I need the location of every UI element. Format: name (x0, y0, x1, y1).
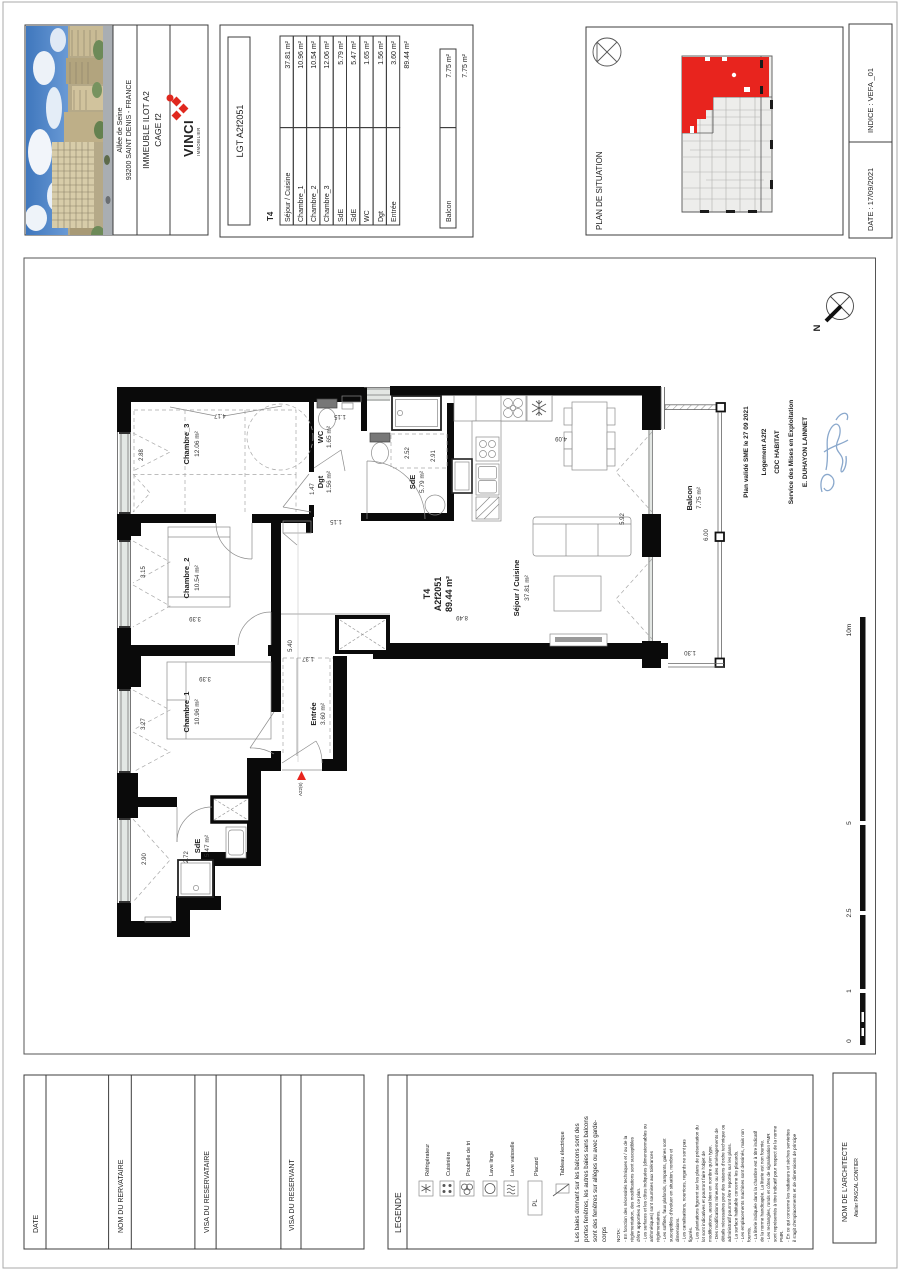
svg-text:de la norme handicapée. La lit: de la norme handicapée. La literie est n… (760, 1140, 765, 1242)
svg-text:12.06 m²: 12.06 m² (194, 430, 201, 456)
svg-text:CDC HABITAT: CDC HABITAT (774, 430, 781, 473)
svg-text:Placard: Placard (534, 1157, 540, 1176)
svg-text:SdE: SdE (351, 208, 358, 222)
svg-text:DATE: DATE (33, 1215, 40, 1233)
svg-text:10.54 m²: 10.54 m² (311, 40, 318, 68)
svg-text:Dgt: Dgt (316, 475, 325, 488)
svg-text:Tableau électrique: Tableau électrique (560, 1131, 566, 1176)
svg-text:6.00: 6.00 (704, 529, 710, 541)
svg-text:- La surface habitable concern: - La surface habitable concerne les plac… (734, 1151, 739, 1242)
svg-text:Dgt: Dgt (378, 211, 385, 222)
svg-text:A2f2051: A2f2051 (433, 577, 443, 612)
svg-text:Cuisinière: Cuisinière (446, 1152, 452, 1176)
svg-text:SdE: SdE (408, 475, 417, 490)
svg-text:10.96 m²: 10.96 m² (194, 698, 201, 724)
svg-text:E. DUHAYON LAINNET: E. DUHAYON LAINNET (802, 417, 809, 487)
svg-text:3.27: 3.27 (141, 718, 147, 730)
svg-text:détails nécessaires pour des r: détails nécessaires pour des raisons d'o… (721, 1124, 726, 1242)
svg-text:CAGE f2: CAGE f2 (153, 113, 163, 147)
svg-text:37.81 m²: 37.81 m² (524, 574, 531, 600)
svg-text:2.52: 2.52 (405, 447, 411, 459)
svg-text:PMR.: PMR. (779, 1231, 784, 1242)
svg-text:4.09: 4.09 (555, 435, 567, 441)
svg-text:corps: corps (601, 1227, 608, 1242)
svg-text:LGT A2f2051: LGT A2f2051 (235, 105, 245, 158)
svg-text:0: 0 (846, 1039, 853, 1043)
svg-text:1.56 m²: 1.56 m² (326, 470, 333, 493)
svg-text:89.44 m²: 89.44 m² (444, 576, 454, 612)
svg-text:5.40: 5.40 (288, 640, 294, 652)
svg-text:10.54 m²: 10.54 m² (194, 564, 201, 590)
svg-text:modifications, aussi bien en n: modifications, aussi bien en nombre qu'e… (708, 1145, 713, 1242)
svg-text:5.79 m²: 5.79 m² (338, 40, 345, 64)
svg-text:1: 1 (846, 989, 853, 993)
svg-text:Balcon: Balcon (446, 200, 453, 222)
svg-text:NOM DE L'ARCHITECTE: NOM DE L'ARCHITECTE (842, 1142, 849, 1222)
svg-text:Allée de Seine: Allée de Seine (117, 107, 124, 152)
svg-text:3.15: 3.15 (141, 566, 147, 578)
svg-text:- Les soffites, faux plafonds,: - Les soffites, faux plafonds, rampants,… (662, 1138, 667, 1242)
svg-text:Chambre_3: Chambre_3 (324, 185, 331, 222)
svg-text:5.47 m²: 5.47 m² (351, 40, 358, 64)
svg-text:réglementation, des modificati: réglementation, des modifications sont s… (630, 1136, 635, 1242)
svg-text:- Les emplacements machines so: - Les emplacements machines sont dessiné… (740, 1129, 745, 1242)
svg-text:A22(6): A22(6) (298, 782, 303, 796)
svg-text:3.60 m²: 3.60 m² (391, 40, 398, 64)
svg-text:Balcon: Balcon (685, 485, 694, 510)
svg-text:administratif pourront être re: administratif pourront être reportés sur… (727, 1143, 732, 1242)
svg-text:WC: WC (364, 210, 371, 222)
svg-text:IMMOBILIER: IMMOBILIER (196, 127, 201, 156)
svg-text:Chambre_3: Chambre_3 (182, 424, 191, 465)
svg-text:figurés.: figurés. (688, 1227, 693, 1242)
svg-text:Chambre_2: Chambre_2 (182, 558, 191, 599)
svg-text:VISA DU RESERVANT: VISA DU RESERVANT (289, 1159, 296, 1231)
svg-text:10m: 10m (846, 624, 853, 637)
svg-text:SdE: SdE (338, 208, 345, 222)
svg-text:LEGENDE: LEGENDE (393, 1192, 403, 1233)
svg-text:- Les plantations figurent sur: - Les plantations figurent sur les plans… (695, 1125, 700, 1242)
svg-text:INDICE : VEFA _01: INDICE : VEFA _01 (866, 68, 875, 133)
svg-text:PL: PL (533, 1199, 539, 1207)
svg-text:10.96 m²: 10.96 m² (298, 40, 305, 68)
svg-text:Séjour / Cuisine: Séjour / Cuisine (512, 560, 521, 617)
svg-text:- En fonction des nécessités t: - En fonction des nécessités techniques … (623, 1135, 628, 1242)
svg-text:37.81 m²: 37.81 m² (285, 40, 292, 68)
svg-text:Séjour / Cuisine: Séjour / Cuisine (285, 172, 292, 222)
svg-text:2.90: 2.90 (142, 853, 148, 865)
svg-text:Lave linge: Lave linge (489, 1151, 495, 1176)
svg-text:Lave vaisselle: Lave vaisselle (510, 1141, 516, 1176)
svg-text:8.49: 8.49 (456, 614, 468, 620)
svg-text:Chambre_1: Chambre_1 (182, 692, 191, 733)
svg-text:VISA DU RESERVATAIRE: VISA DU RESERVATAIRE (204, 1151, 211, 1233)
svg-text:Atelier PASCAL GONTIER: Atelier PASCAL GONTIER (854, 1158, 860, 1217)
svg-text:12.06 m²: 12.06 m² (324, 40, 331, 68)
svg-text:Entrée: Entrée (309, 702, 318, 725)
svg-text:5.92: 5.92 (620, 513, 626, 525)
svg-text:Chambre_1: Chambre_1 (298, 185, 305, 222)
svg-text:SdE: SdE (193, 839, 202, 854)
svg-text:portes fenêtres, les autres ba: portes fenêtres, les autres baies sans b… (583, 1116, 590, 1242)
svg-text:réglementaires.: réglementaires. (656, 1210, 661, 1242)
svg-text:1.47: 1.47 (310, 483, 316, 495)
svg-text:d'être apportées à ce plan.: d'être apportées à ce plan. (636, 1188, 641, 1242)
svg-text:- Des modifications mineures o: - Des modifications mineures ou des amén… (714, 1128, 719, 1242)
svg-text:2.88: 2.88 (139, 449, 145, 461)
svg-text:3.39: 3.39 (189, 615, 201, 621)
svg-text:VINCI: VINCI (181, 120, 196, 157)
svg-text:1.15: 1.15 (330, 518, 342, 524)
svg-text:7.75 m²: 7.75 m² (696, 486, 703, 509)
svg-text:fournis.: fournis. (747, 1227, 752, 1242)
svg-text:Poubelle de tri: Poubelle de tri (466, 1141, 472, 1176)
svg-text:Chambre_2: Chambre_2 (311, 185, 318, 222)
svg-text:Logement A2f2: Logement A2f2 (761, 428, 768, 475)
svg-text:3.60 m²: 3.60 m² (320, 702, 327, 725)
svg-text:1.65 m²: 1.65 m² (364, 40, 371, 64)
svg-text:sont des fenêtres sur allèges: sont des fenêtres sur allèges ou avec ga… (592, 1120, 599, 1242)
svg-text:- Les surfaces et les côtes in: - Les surfaces et les côtes indiquées (d… (643, 1124, 648, 1242)
svg-text:Service des Mises en Exploitat: Service des Mises en Exploitation (788, 400, 795, 504)
svg-text:- En ce qui concerne les radia: - En ce qui concerne les radiateurs et s… (786, 1128, 791, 1242)
svg-text:DATE : 17/09/2021: DATE : 17/09/2021 (866, 168, 875, 231)
svg-text:IMMEUBLE ILOT A2: IMMEUBLE ILOT A2 (141, 91, 151, 169)
svg-text:2.72: 2.72 (184, 851, 190, 863)
svg-text:1.56 m²: 1.56 m² (378, 40, 385, 64)
svg-text:89.44 m²: 89.44 m² (404, 40, 411, 68)
svg-text:2.5: 2.5 (846, 908, 853, 917)
svg-text:T4: T4 (266, 211, 275, 221)
svg-text:- La literie indiquée dans la: - La literie indiquée dans la chambre es… (753, 1130, 758, 1242)
svg-text:93200 SAINT DENIS - FRANCE: 93200 SAINT DENIS - FRANCE (126, 80, 133, 181)
svg-text:arithmétiques) sont soumises a: arithmétiques) sont soumises aux toléran… (649, 1150, 654, 1242)
svg-text:lot sont indicatives et pourro: lot sont indicatives et pourront faire l… (701, 1151, 706, 1242)
svg-text:NOM DU RERVATAIRE: NOM DU RERVATAIRE (118, 1159, 125, 1233)
svg-text:5.79 m²: 5.79 m² (419, 470, 426, 493)
svg-text:7.75 m²: 7.75 m² (462, 53, 469, 77)
svg-text:T4: T4 (422, 589, 432, 600)
svg-text:PLAN DE SITUATION: PLAN DE SITUATION (595, 151, 604, 230)
svg-text:N: N (812, 324, 823, 331)
svg-text:- Les canalisations, nourrices: - Les canalisations, nourrices, regards … (682, 1139, 687, 1242)
svg-text:3.39: 3.39 (199, 675, 211, 681)
svg-text:susceptibles d'évoluer en situ: susceptibles d'évoluer en situation, nom… (669, 1148, 674, 1242)
svg-text:2.91: 2.91 (431, 450, 437, 462)
svg-text:1.30: 1.30 (684, 649, 696, 655)
svg-text:sont représentés à titre indic: sont représentés à titre indicatif pour … (773, 1125, 778, 1242)
svg-text:dimensions.: dimensions. (675, 1217, 680, 1242)
svg-text:7.75 m²: 7.75 m² (446, 53, 453, 77)
svg-text:1.65 m²: 1.65 m² (326, 425, 333, 448)
svg-text:WC: WC (316, 430, 325, 443)
svg-text:Plan validé SME le 27 09 2021: Plan validé SME le 27 09 2021 (743, 406, 750, 498)
svg-text:Réfrigérateur: Réfrigérateur (425, 1144, 431, 1176)
svg-text:4.17: 4.17 (214, 412, 226, 418)
svg-text:NOTA:: NOTA: (616, 1228, 621, 1242)
svg-text:1.15: 1.15 (334, 413, 346, 419)
svg-text:Les baies donnant sur les balc: Les baies donnant sur les balcons sont d… (574, 1123, 581, 1242)
svg-text:5: 5 (846, 821, 853, 825)
svg-text:- Les rectangles, ronds et côt: - Les rectangles, ronds et côtes de sign… (766, 1133, 771, 1242)
svg-text:Entrée: Entrée (391, 201, 398, 222)
svg-text:5.47 m²: 5.47 m² (204, 834, 211, 857)
svg-text:il s'agit d'emplacements et de: il s'agit d'emplacements et de dimension… (792, 1133, 797, 1242)
